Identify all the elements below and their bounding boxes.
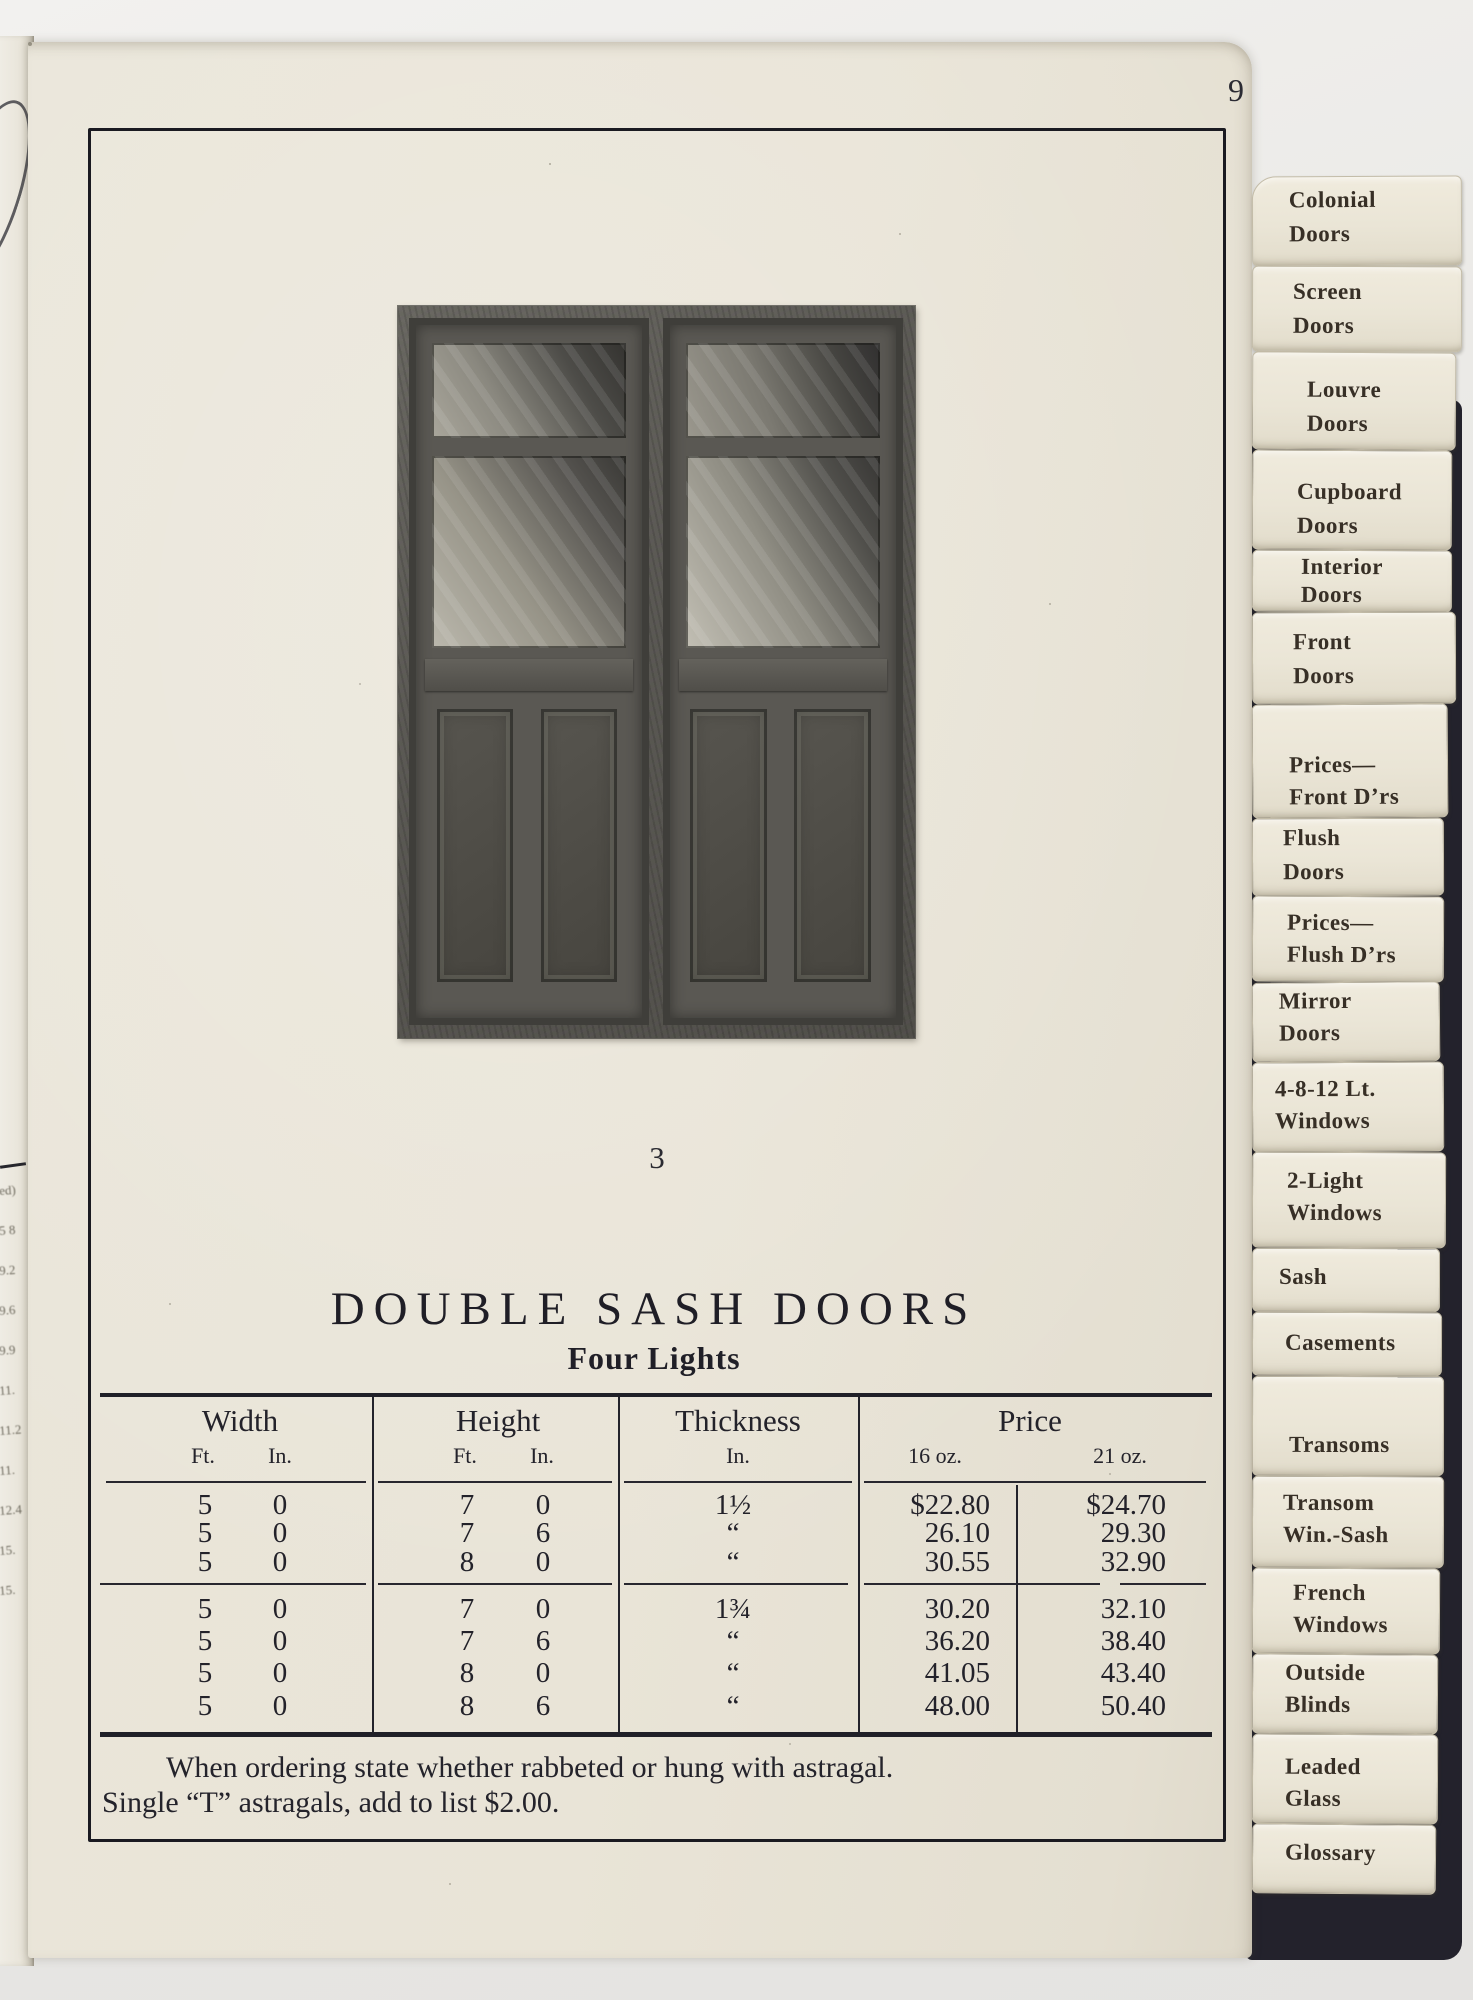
- table-cell-p21: 32.10: [1006, 1593, 1166, 1626]
- index-tab-label-line: Prices—: [1289, 748, 1447, 781]
- index-tab-prices-flush-d-rs[interactable]: Prices—Flush D’rs: [1252, 895, 1444, 982]
- table-row: 5080“30.5532.90: [100, 1546, 1212, 1576]
- index-tab-label-line: Blinds: [1285, 1689, 1437, 1722]
- group-divider-rule: [1120, 1583, 1206, 1585]
- previous-page-fragment: 5 8: [0, 1221, 31, 1263]
- col-header-width: Width: [140, 1403, 340, 1439]
- previous-page-fragment: 12.4: [0, 1501, 31, 1543]
- previous-page-fragment: 11.2: [0, 1421, 31, 1463]
- previous-page-fragment: 15.: [0, 1581, 31, 1623]
- door-lock-rail: [425, 659, 633, 691]
- glass-light: [686, 456, 880, 647]
- group-divider-rule: [624, 1583, 848, 1585]
- index-tab-label-line: Doors: [1301, 581, 1451, 610]
- price-table: Width Height Thickness Price Ft. In. Ft.…: [100, 1393, 1212, 1739]
- table-cell-hi: 6: [513, 1625, 573, 1658]
- index-tab-label-line: Glossary: [1285, 1836, 1435, 1869]
- index-tab-label-line: Colonial: [1289, 182, 1461, 217]
- index-tab-label-line: Louvre: [1307, 373, 1455, 408]
- previous-page-fragment: 9.6: [0, 1301, 31, 1343]
- group-divider-rule: [864, 1583, 1100, 1585]
- header-rule: [864, 1481, 1206, 1483]
- table-cell-t: “: [663, 1690, 803, 1723]
- table-cell-p16: 48.00: [830, 1690, 990, 1723]
- table-cell-hi: 0: [513, 1546, 573, 1579]
- table-cell-p16: 30.55: [830, 1546, 990, 1579]
- glass-light: [686, 343, 880, 439]
- index-tab-screen-doors[interactable]: ScreenDoors: [1252, 266, 1462, 353]
- index-tab-casements[interactable]: Casements: [1252, 1312, 1442, 1377]
- index-tab-label-line: Flush D’rs: [1287, 939, 1443, 972]
- index-tab-french-windows[interactable]: FrenchWindows: [1252, 1568, 1440, 1655]
- glass-light: [432, 456, 626, 647]
- table-cell-hf: 7: [437, 1593, 497, 1626]
- index-tab-label-line: Front D’rs: [1289, 780, 1447, 813]
- index-tab-label-line: Glass: [1285, 1783, 1437, 1816]
- table-cell-p16: 41.05: [830, 1657, 990, 1690]
- table-cell-hf: 7: [437, 1625, 497, 1658]
- table-row: 5086“48.0050.40: [100, 1690, 1212, 1720]
- index-tab-label-line: 2-Light: [1287, 1165, 1445, 1198]
- table-bottom-rule: [100, 1732, 1212, 1737]
- table-cell-hi: 0: [513, 1657, 573, 1690]
- index-tab-label-line: Sash: [1279, 1261, 1439, 1293]
- subheader-thickness-in: In.: [708, 1443, 768, 1469]
- page-subtitle: Four Lights: [88, 1340, 1220, 1377]
- table-cell-wf: 5: [175, 1657, 235, 1690]
- table-cell-wi: 0: [250, 1625, 310, 1658]
- figure-number: 3: [407, 1140, 907, 1176]
- table-row: 5076“36.2038.40: [100, 1625, 1212, 1655]
- table-cell-hi: 6: [513, 1690, 573, 1723]
- index-tab-transom-win-sash[interactable]: TransomWin.-Sash: [1252, 1476, 1444, 1569]
- index-tab-label-line: Doors: [1289, 216, 1461, 251]
- index-tab-label-line: Doors: [1297, 509, 1451, 544]
- index-tab-label-line: Front: [1293, 625, 1455, 660]
- table-cell-wi: 0: [250, 1690, 310, 1723]
- door-panel: [437, 709, 514, 983]
- subheader-width-in: In.: [250, 1443, 310, 1469]
- previous-page-fragment: 11.: [0, 1381, 31, 1423]
- ordering-note-line2: Single “T” astragals, add to list $2.00.: [102, 1785, 1172, 1820]
- index-tab-label-line: Outside: [1285, 1657, 1437, 1690]
- index-tab-label-line: Win.-Sash: [1283, 1519, 1443, 1552]
- scanned-catalog-page: ed)5 89.29.69.911.11.211.12.415.15. 9 3 …: [0, 0, 1473, 2000]
- table-row: 50701½$22.80$24.70: [100, 1489, 1212, 1519]
- ordering-note-line1: When ordering state whether rabbeted or …: [102, 1750, 1172, 1785]
- index-tab-label-line: Screen: [1293, 275, 1461, 310]
- table-cell-hf: 8: [437, 1657, 497, 1690]
- page-number: 9: [1140, 72, 1244, 109]
- door-lock-rail: [679, 659, 887, 691]
- table-cell-wi: 0: [250, 1593, 310, 1626]
- index-tab-transoms[interactable]: Transoms: [1252, 1376, 1444, 1476]
- table-cell-wi: 0: [250, 1546, 310, 1579]
- previous-page-fragment: 11.: [0, 1461, 31, 1503]
- index-tab-label-line: Cupboard: [1297, 475, 1451, 510]
- subheader-16oz: 16 oz.: [875, 1443, 995, 1469]
- door-leaf-left: [409, 318, 649, 1025]
- table-cell-wf: 5: [175, 1690, 235, 1723]
- index-tab-label-line: Doors: [1293, 659, 1455, 694]
- index-tab-interior-doors[interactable]: InteriorDoors: [1252, 550, 1452, 613]
- table-cell-p21: 38.40: [1006, 1625, 1166, 1658]
- index-tab-label-line: Doors: [1307, 407, 1455, 442]
- door-panel: [690, 709, 767, 983]
- door-leaf-right: [663, 318, 903, 1025]
- index-tab-label-line: Prices—: [1287, 907, 1443, 940]
- index-tab-label-line: French: [1293, 1577, 1439, 1610]
- index-tab-outside-blinds[interactable]: OutsideBlinds: [1252, 1653, 1439, 1734]
- index-tab-mirror-doors[interactable]: MirrorDoors: [1252, 981, 1441, 1063]
- table-cell-p21: 32.90: [1006, 1546, 1166, 1579]
- col-header-thickness: Thickness: [638, 1403, 838, 1439]
- header-rule: [378, 1481, 612, 1483]
- index-tab-label-line: Interior: [1301, 553, 1451, 582]
- index-tab-label-line: Transom: [1283, 1487, 1443, 1520]
- index-tab-glossary[interactable]: Glossary: [1252, 1823, 1437, 1895]
- index-tab-label-line: Windows: [1275, 1105, 1443, 1138]
- previous-page-fragment: ed): [0, 1181, 31, 1223]
- index-tab-label-line: Doors: [1293, 309, 1461, 344]
- table-cell-wf: 5: [175, 1593, 235, 1626]
- index-tab-colonial-doors[interactable]: ColonialDoors: [1252, 175, 1462, 266]
- index-tab-label-line: Mirror: [1279, 984, 1439, 1017]
- door-panel: [794, 709, 871, 983]
- table-cell-p16: 30.20: [830, 1593, 990, 1626]
- table-cell-wf: 5: [175, 1546, 235, 1579]
- double-sash-door-photo: [398, 306, 915, 1038]
- col-header-price: Price: [930, 1403, 1130, 1439]
- index-tab-front-doors[interactable]: FrontDoors: [1252, 612, 1456, 705]
- table-cell-t: “: [663, 1546, 803, 1579]
- paper-specks: [28, 42, 32, 46]
- previous-page-rule-fragment: [0, 1162, 26, 1169]
- subheader-height-ft: Ft.: [435, 1443, 495, 1469]
- table-cell-t: “: [663, 1625, 803, 1658]
- index-tab-leaded-glass[interactable]: LeadedGlass: [1252, 1734, 1438, 1825]
- index-tab-louvre-doors[interactable]: LouvreDoors: [1252, 351, 1457, 450]
- header-rule: [624, 1481, 852, 1483]
- subheader-width-ft: Ft.: [173, 1443, 233, 1469]
- index-tab-prices-front-d-rs[interactable]: Prices—Front D’rs: [1252, 703, 1449, 818]
- table-cell-hi: 0: [513, 1593, 573, 1626]
- glass-light: [432, 343, 626, 439]
- previous-page-fragment: 9.9: [0, 1341, 31, 1383]
- index-tab-label-line: Windows: [1287, 1197, 1445, 1230]
- table-cell-t: 1¾: [663, 1593, 803, 1626]
- subheader-21oz: 21 oz.: [1060, 1443, 1180, 1469]
- index-tab-label-line: Casements: [1285, 1327, 1441, 1360]
- door-panel: [541, 709, 618, 983]
- index-tab-label-line: Flush: [1283, 821, 1443, 856]
- index-tab-cupboard-doors[interactable]: CupboardDoors: [1252, 449, 1453, 550]
- table-cell-hf: 8: [437, 1690, 497, 1723]
- index-tab-label-line: Leaded: [1285, 1751, 1437, 1784]
- index-tab-label-line: Windows: [1293, 1609, 1439, 1642]
- table-cell-wf: 5: [175, 1625, 235, 1658]
- group-divider-rule: [100, 1583, 366, 1585]
- subheader-height-in: In.: [512, 1443, 572, 1469]
- index-tab-label-line: Doors: [1279, 1016, 1439, 1049]
- table-cell-hf: 8: [437, 1546, 497, 1579]
- index-tab-label-line: Doors: [1283, 855, 1443, 890]
- table-cell-p16: 36.20: [830, 1625, 990, 1658]
- table-top-rule: [100, 1393, 1212, 1397]
- col-header-height: Height: [398, 1403, 598, 1439]
- table-cell-p21: 50.40: [1006, 1690, 1166, 1723]
- page-title: DOUBLE SASH DOORS: [88, 1282, 1220, 1336]
- header-rule: [106, 1481, 366, 1483]
- table-row: 5080“41.0543.40: [100, 1657, 1212, 1687]
- index-tab-4-8-12-lt-windows[interactable]: 4-8-12 Lt.Windows: [1252, 1061, 1444, 1152]
- previous-page-fragment: 9.2: [0, 1261, 31, 1303]
- table-cell-p21: 43.40: [1006, 1657, 1166, 1690]
- index-tab-label-line: 4-8-12 Lt.: [1275, 1073, 1443, 1106]
- index-tab-2-light-windows[interactable]: 2-LightWindows: [1252, 1152, 1446, 1249]
- table-cell-t: “: [663, 1657, 803, 1690]
- index-tab-flush-doors[interactable]: FlushDoors: [1252, 818, 1444, 897]
- ordering-note: When ordering state whether rabbeted or …: [102, 1750, 1172, 1820]
- previous-page-fragment: 15.: [0, 1541, 31, 1583]
- table-row: 5076“26.1029.30: [100, 1517, 1212, 1547]
- group-divider-rule: [378, 1583, 612, 1585]
- index-tab-label-line: Transoms: [1289, 1429, 1443, 1461]
- table-cell-wi: 0: [250, 1657, 310, 1690]
- index-tab-sash[interactable]: Sash: [1252, 1248, 1440, 1312]
- table-row: 50701¾30.2032.10: [100, 1593, 1212, 1623]
- previous-page-number-fragments: ed)5 89.29.69.911.11.211.12.415.15.: [0, 1182, 30, 1622]
